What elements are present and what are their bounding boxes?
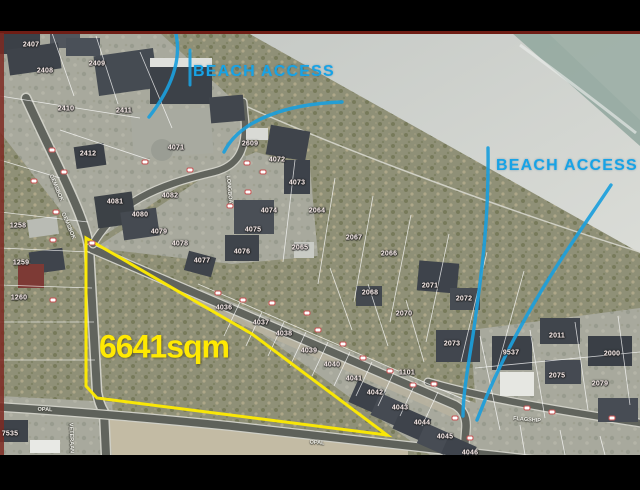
map-border-top	[0, 31, 640, 34]
map-border-left	[0, 33, 4, 455]
aerial-map	[0, 0, 640, 490]
screenshot-frame: BEACH ACCESS BEACH ACCESS 6641sqm 240724…	[0, 0, 640, 490]
bottom-black-bar	[0, 455, 640, 490]
top-black-bar	[0, 0, 640, 31]
